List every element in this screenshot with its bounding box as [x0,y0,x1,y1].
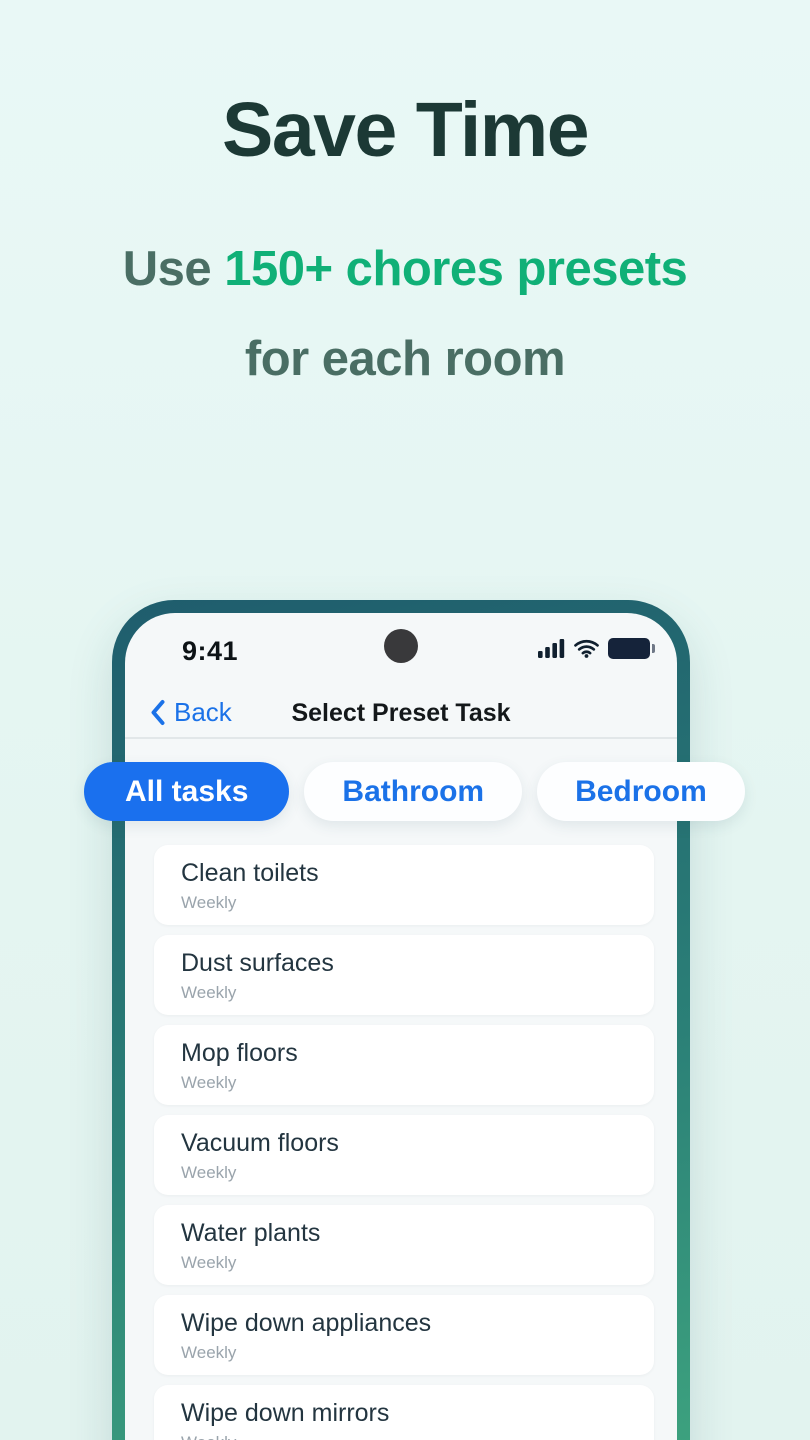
phone-screen: 9:41 [125,613,677,1440]
status-bar-icons [538,638,650,659]
task-title: Wipe down appliances [181,1308,654,1339]
filter-chip-label: Bedroom [575,775,707,808]
task-frequency: Weekly [181,1073,654,1093]
battery-icon [608,638,650,659]
status-bar-time: 9:41 [182,636,238,667]
task-title: Vacuum floors [181,1128,654,1159]
page-title: Save Time [0,86,810,175]
subtitle-prefix: Use [123,242,225,296]
subtitle-highlight: 150+ chores presets [224,242,687,296]
nav-bar: Back Select Preset Task [125,691,677,739]
task-frequency: Weekly [181,1433,654,1440]
task-title: Clean toilets [181,858,654,889]
task-card[interactable]: Wipe down mirrors Weekly [154,1385,654,1440]
task-frequency: Weekly [181,1343,654,1363]
task-card[interactable]: Dust surfaces Weekly [154,935,654,1015]
task-frequency: Weekly [181,893,654,913]
filter-chip[interactable]: Bedroom [537,762,745,821]
task-title: Dust surfaces [181,948,654,979]
task-list: Clean toilets Weekly Dust surfaces Weekl… [154,845,654,1440]
task-frequency: Weekly [181,1163,654,1183]
app-store-screenshot: Save Time Use 150+ chores presets for ea… [0,0,810,1440]
cell-signal-icon [538,639,565,658]
task-frequency: Weekly [181,1253,654,1273]
task-title: Mop floors [181,1038,654,1069]
page-subtitle: Use 150+ chores presets for each room [0,224,810,404]
task-card[interactable]: Clean toilets Weekly [154,845,654,925]
task-card[interactable]: Wipe down appliances Weekly [154,1295,654,1375]
camera-notch [384,629,418,663]
wifi-icon [574,639,599,658]
filter-chip-label: Bathroom [342,775,484,808]
task-card[interactable]: Water plants Weekly [154,1205,654,1285]
task-card[interactable]: Mop floors Weekly [154,1025,654,1105]
phone-frame: 9:41 [112,600,690,1440]
room-filter-chips: All tasks Bathroom Bedroom [84,762,745,821]
task-title: Wipe down mirrors [181,1398,654,1429]
filter-chip[interactable]: All tasks [84,762,289,821]
filter-chip[interactable]: Bathroom [304,762,522,821]
filter-chip-label: All tasks [125,775,248,808]
task-title: Water plants [181,1218,654,1249]
task-card[interactable]: Vacuum floors Weekly [154,1115,654,1195]
nav-divider [125,737,677,739]
task-frequency: Weekly [181,983,654,1003]
subtitle-line2: for each room [245,332,565,386]
screen-title: Select Preset Task [125,699,677,728]
